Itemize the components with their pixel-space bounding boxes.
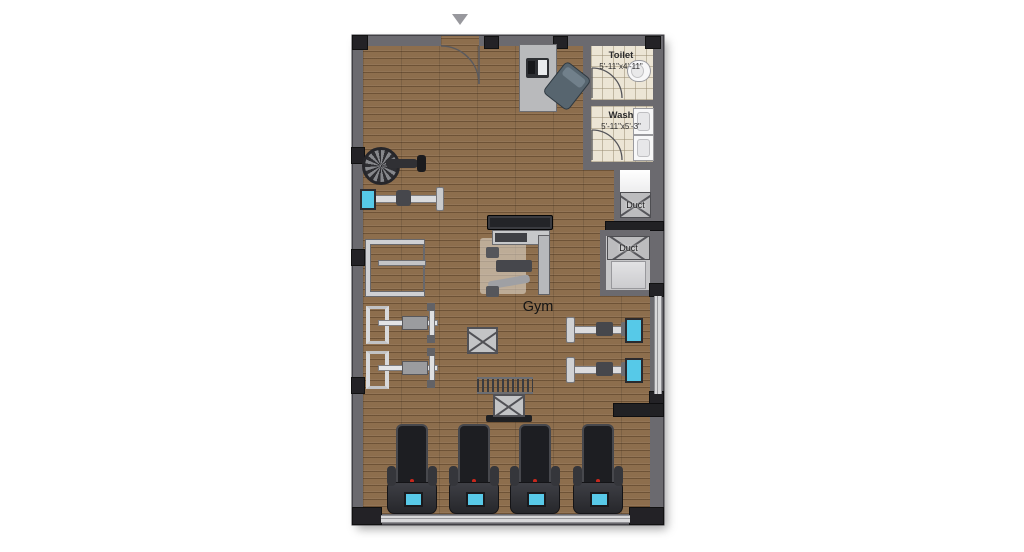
- floor-plan-canvas: Duct Duct Toilet 5'-11"x4'-11" Wash 5'-1…: [0, 0, 1024, 552]
- treadmill: [389, 424, 435, 514]
- treadmill: [575, 424, 621, 514]
- desk-computer: [526, 58, 549, 78]
- treadmill-screen: [527, 492, 546, 507]
- duct-upper-label: Duct: [621, 200, 650, 210]
- treadmill-console: [510, 482, 560, 514]
- treadmill-belt: [519, 424, 551, 488]
- gym-room-label: Gym: [500, 299, 576, 315]
- treadmill-console: [449, 482, 499, 514]
- duct-lower-label: Duct: [608, 243, 649, 253]
- toilet-name: Toilet: [589, 50, 653, 62]
- treadmill-console: [387, 482, 437, 514]
- crate-platform: [489, 394, 529, 422]
- treadmill: [451, 424, 497, 514]
- gym-mat: [487, 215, 553, 230]
- equipment-layer: [0, 0, 1024, 552]
- rowing-machine: [360, 184, 444, 212]
- treadmill-screen: [590, 492, 609, 507]
- weight-bench: [566, 313, 648, 345]
- treadmill-belt: [396, 424, 428, 488]
- barbell: [429, 303, 435, 343]
- treadmill-belt: [582, 424, 614, 488]
- weight-bench-screen: [625, 318, 643, 343]
- dumbbell-rack: [477, 377, 533, 394]
- toilet-room-label: Toilet 5'-11"x4'-11": [589, 50, 653, 72]
- treadmill-screen: [404, 492, 423, 507]
- toilet-dimensions: 5'-11"x4'-11": [589, 62, 653, 72]
- weight-bench: [566, 353, 648, 385]
- treadmill-screen: [466, 492, 485, 507]
- spin-bike: [362, 146, 426, 182]
- treadmill: [512, 424, 558, 514]
- treadmill-console: [573, 482, 623, 514]
- wash-room-label: Wash 5'-11"x5'-3": [589, 110, 653, 132]
- wash-name: Wash: [589, 110, 653, 122]
- bench-press: [366, 348, 444, 386]
- treadmill-belt: [458, 424, 490, 488]
- wash-dimensions: 5'-11"x5'-3": [589, 122, 653, 132]
- squat-rack: [366, 240, 424, 296]
- rowing-screen: [360, 189, 376, 210]
- crate: [467, 327, 498, 354]
- weight-bench-screen: [625, 358, 643, 383]
- sink: [633, 135, 654, 161]
- multi-gym: [480, 230, 558, 300]
- bench-press: [366, 303, 444, 341]
- barbell: [429, 348, 435, 388]
